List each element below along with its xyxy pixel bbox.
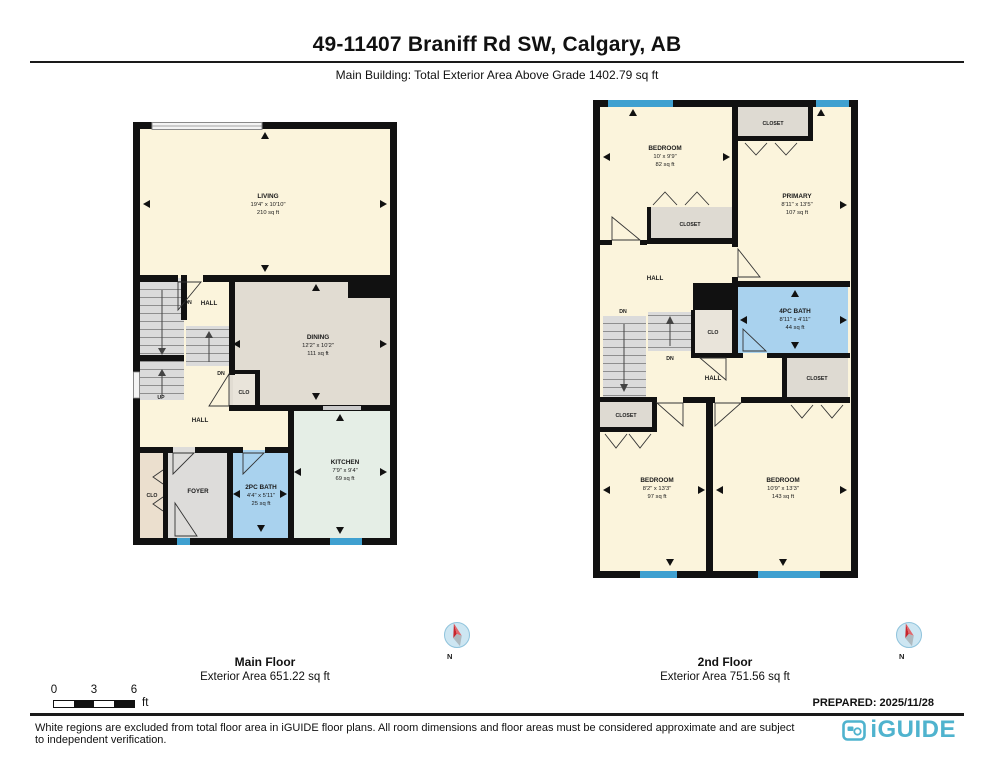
- closet-mid-label: CLOSET: [679, 222, 701, 228]
- hall-lower-label: HALL: [192, 417, 209, 424]
- clo-mid-label: CLO: [239, 390, 250, 396]
- main-floor-plan: LIVING 19'4" x 10'10" 210 sq ft DINING 1…: [133, 122, 397, 545]
- bedroom-right-label: BEDROOM: [766, 477, 799, 484]
- dn-mid-label: DN: [217, 371, 225, 377]
- bedroom-left-dims: 8'2" x 13'3": [643, 486, 672, 492]
- bath-dims: 4'4" x 5'11": [247, 493, 275, 499]
- primary-label: PRIMARY: [782, 193, 812, 200]
- dn-mid-label: DN: [666, 356, 674, 362]
- scale-tick-3: 3: [91, 684, 97, 696]
- second-floor-caption: 2nd Floor Exterior Area 751.56 sq ft: [605, 655, 845, 684]
- dining-label: DINING: [307, 334, 329, 341]
- top-divider: [30, 61, 964, 63]
- iguide-logo: iGUIDE: [842, 716, 956, 744]
- bath-area: 25 sq ft: [251, 501, 270, 507]
- window-bottom-kitchen: [330, 538, 362, 545]
- window-left: [134, 372, 140, 398]
- dn-left-label: DN: [619, 309, 627, 315]
- living-label: LIVING: [257, 193, 278, 200]
- scale-bar-segments: [53, 700, 135, 708]
- hall-upper-label: HALL: [647, 275, 664, 282]
- window-bottom-right: [758, 571, 820, 578]
- bath-dims: 8'11" x 4'11": [780, 317, 811, 323]
- dining-dims: 12'2" x 10'2": [302, 343, 334, 349]
- compass-second-floor: N: [892, 619, 926, 661]
- page-title: 49-11407 Braniff Rd SW, Calgary, AB: [0, 33, 994, 57]
- second-floor-plan: BEDROOM 10' x 9'9" 82 sq ft PRIMARY 8'11…: [593, 100, 858, 578]
- up-label: UP: [157, 395, 165, 401]
- bedroom-right-dims: 10'9" x 13'3": [767, 486, 799, 492]
- bedroom-right-area: 143 sq ft: [772, 494, 795, 500]
- bedroom-top-dims: 10' x 9'9": [653, 154, 676, 160]
- clo-left-label: CLO: [147, 493, 158, 499]
- bedroom-top-area: 82 sq ft: [655, 162, 674, 168]
- scale-tick-6: 6: [131, 684, 137, 696]
- living-area: 210 sq ft: [257, 210, 280, 216]
- dining-area: 111 sq ft: [307, 351, 329, 357]
- bottom-divider: [30, 713, 964, 716]
- iguide-logo-text: iGUIDE: [870, 716, 956, 744]
- primary-area: 107 sq ft: [786, 210, 809, 216]
- closet-top-label: CLOSET: [762, 121, 784, 127]
- closet-bl-label: CLOSET: [615, 413, 637, 419]
- kitchen-dims: 7'9" x 9'4": [332, 468, 357, 474]
- bath-label: 4PC BATH: [779, 308, 811, 315]
- foyer-label: FOYER: [187, 488, 209, 495]
- kitchen-label: KITCHEN: [331, 459, 360, 466]
- living-dims: 19'4" x 10'10": [250, 202, 285, 208]
- window-top-left: [608, 100, 673, 107]
- disclaimer-text: White regions are excluded from total fl…: [35, 722, 795, 746]
- window-bottom-left: [640, 571, 677, 578]
- bedroom-left-area: 97 sq ft: [647, 494, 666, 500]
- bath-area: 44 sq ft: [785, 325, 804, 331]
- scale-bar: 0 3 6 ft: [50, 684, 180, 714]
- scale-unit: ft: [142, 697, 148, 709]
- window-bottom-foyer: [177, 538, 190, 545]
- chase-block: [693, 283, 737, 310]
- kitchen-area: 69 sq ft: [335, 476, 354, 482]
- compass-n-label: N: [899, 652, 904, 661]
- clo-label: CLO: [708, 330, 719, 336]
- prepared-date: PREPARED: 2025/11/28: [813, 697, 934, 709]
- page-subtitle: Main Building: Total Exterior Area Above…: [0, 68, 994, 82]
- closet-right-label: CLOSET: [806, 376, 828, 382]
- bath-label: 2PC BATH: [245, 484, 277, 491]
- window-top-right: [816, 100, 849, 107]
- main-floor-area: Exterior Area 651.22 sq ft: [145, 670, 385, 684]
- hall-lower-label: HALL: [705, 375, 722, 382]
- floor-plan-page: 49-11407 Braniff Rd SW, Calgary, AB Main…: [0, 0, 994, 768]
- hall-upper-label: HALL: [201, 300, 218, 307]
- scale-tick-0: 0: [51, 684, 57, 696]
- second-floor-title: 2nd Floor: [605, 655, 845, 670]
- main-floor-title: Main Floor: [145, 655, 385, 670]
- primary-dims: 8'11" x 13'5": [781, 202, 812, 208]
- compass-main-floor: N: [440, 619, 474, 661]
- dn-upper-label: DN: [184, 300, 192, 306]
- iguide-logo-icon: [842, 719, 866, 742]
- main-floor-caption: Main Floor Exterior Area 651.22 sq ft: [145, 655, 385, 684]
- bedroom-left-label: BEDROOM: [640, 477, 673, 484]
- second-floor-area: Exterior Area 751.56 sq ft: [605, 670, 845, 684]
- compass-n-label: N: [447, 652, 452, 661]
- bedroom-top-label: BEDROOM: [648, 145, 681, 152]
